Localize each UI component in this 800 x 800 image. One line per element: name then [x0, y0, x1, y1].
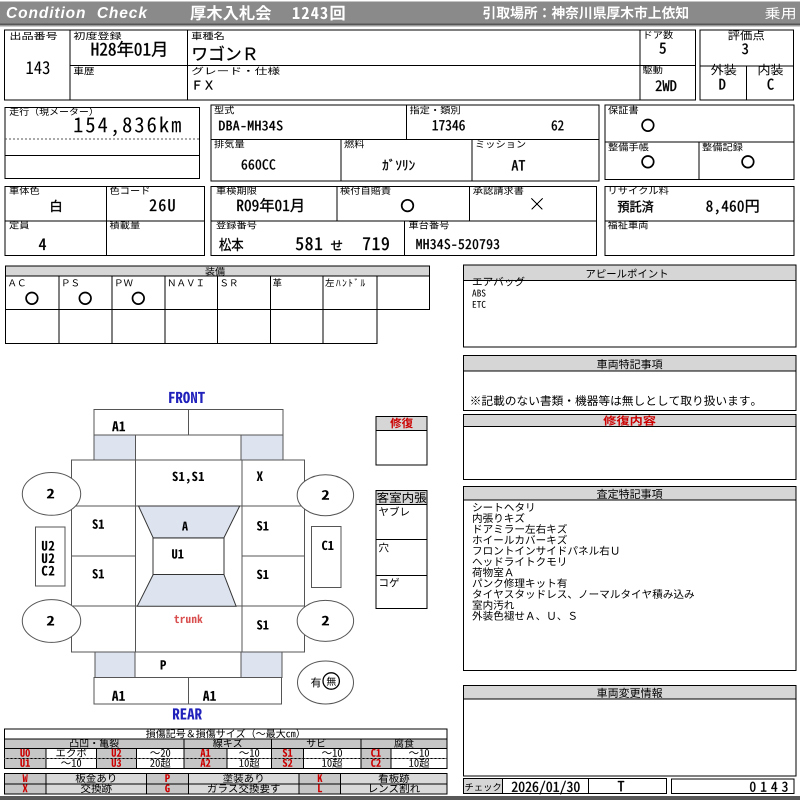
svg-text:Condition Check: Condition Check: [6, 5, 148, 22]
